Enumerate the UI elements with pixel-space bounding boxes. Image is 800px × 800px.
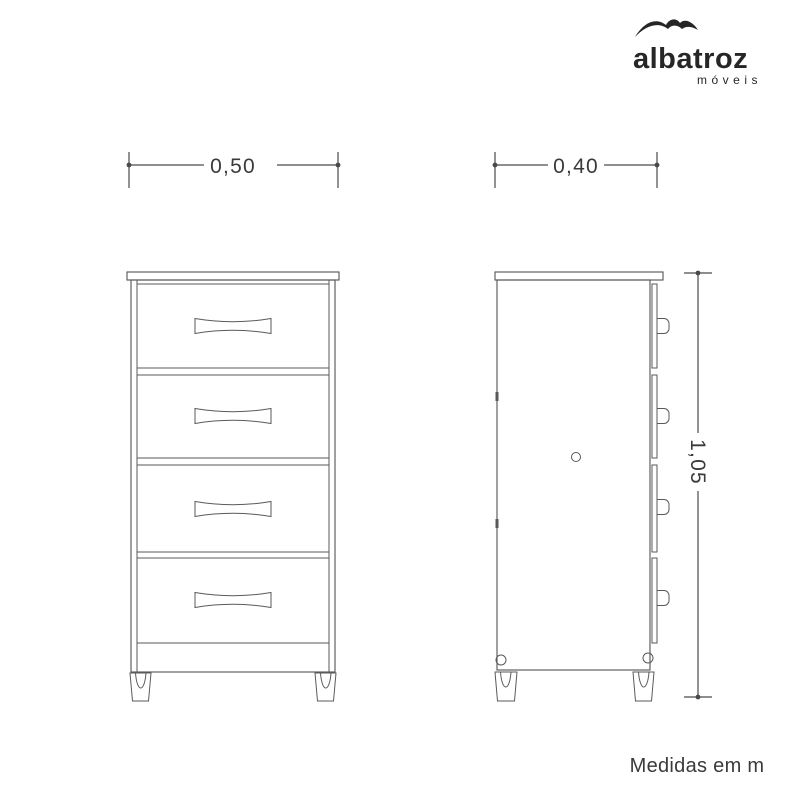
units-note: Medidas em m — [630, 755, 765, 777]
screw-hole — [572, 453, 581, 462]
dimension-endpoint-dot — [493, 163, 498, 168]
drawer-front — [137, 558, 329, 643]
front-view — [127, 272, 339, 701]
drawer-front-profile — [652, 558, 657, 643]
height-label: 1,05 — [686, 439, 709, 485]
front-width-dimension: 0,50 — [127, 152, 341, 188]
top-panel — [495, 272, 663, 280]
technical-drawing-page: albatroz móveis 0,50 0,40 — [0, 0, 800, 800]
cam-lock-mark — [496, 519, 499, 528]
drawer-handle — [195, 502, 271, 517]
front-width-label: 0,50 — [210, 155, 256, 178]
drawer-handle — [195, 593, 271, 608]
foot — [633, 672, 654, 701]
brand-name: albatroz — [633, 43, 748, 75]
side-view — [495, 272, 669, 701]
side-depth-dimension: 0,40 — [493, 152, 660, 188]
drawer-handle-profile — [657, 500, 669, 515]
foot — [315, 673, 336, 701]
height-dimension: 1,05 — [684, 271, 712, 700]
foot — [130, 673, 151, 701]
drawer-front — [137, 375, 329, 458]
drawer-front-profile — [652, 465, 657, 552]
dimension-endpoint-dot — [696, 271, 701, 276]
dimension-endpoint-dot — [655, 163, 660, 168]
drawer-handle-profile — [657, 591, 669, 606]
side-depth-label: 0,40 — [553, 155, 599, 178]
drawer-handle-profile — [657, 409, 669, 424]
drawer-handle — [195, 319, 271, 334]
furniture-drawing-canvas: albatroz móveis 0,50 0,40 — [0, 0, 800, 800]
drawer-front — [137, 465, 329, 552]
albatross-bird-icon — [635, 19, 698, 37]
dimension-endpoint-dot — [696, 695, 701, 700]
top-panel — [127, 272, 339, 280]
cabinet-body — [131, 280, 335, 672]
brand-logo: albatroz móveis — [633, 19, 762, 87]
drawer-handle-profile — [657, 319, 669, 334]
foot — [495, 672, 517, 701]
drawer-front — [137, 284, 329, 368]
drawer-front-profile — [652, 375, 657, 458]
drawer-handle — [195, 409, 271, 424]
dimension-endpoint-dot — [336, 163, 341, 168]
cam-lock-mark — [496, 392, 499, 401]
cabinet-body — [497, 280, 650, 670]
drawer-front-profile — [652, 284, 657, 368]
screw-hole — [643, 653, 653, 663]
brand-subtitle: móveis — [697, 73, 762, 87]
dimension-endpoint-dot — [127, 163, 132, 168]
